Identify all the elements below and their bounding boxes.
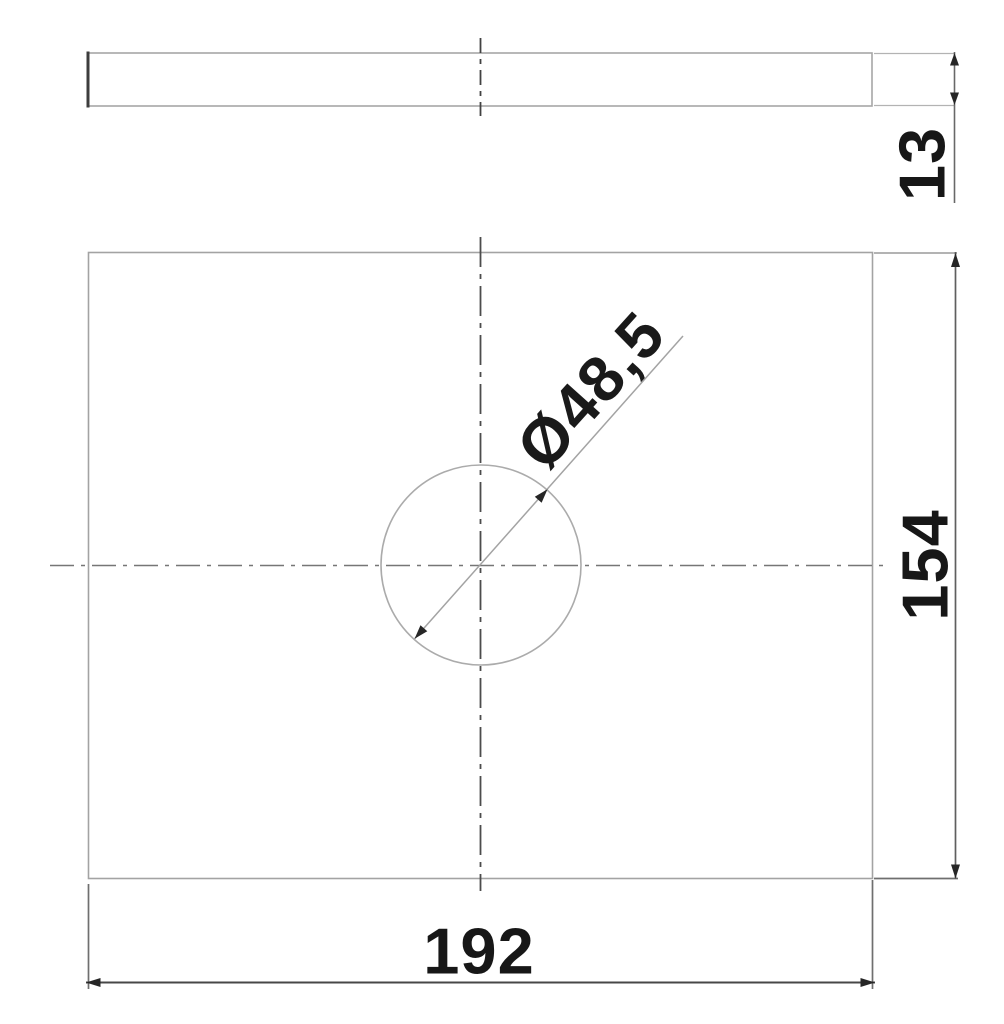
height-arrow-bottom	[951, 865, 960, 879]
width-dimension: 192	[86, 880, 875, 989]
thickness-arrow-bottom	[950, 93, 959, 106]
hole-diameter-label: Ø48,5	[503, 297, 680, 482]
height-arrow-top	[951, 253, 960, 267]
technical-drawing: 13 Ø48,5 154	[0, 0, 1004, 1024]
height-dimension: 154	[874, 252, 962, 879]
top-view	[88, 38, 872, 116]
width-dimension-label: 192	[423, 915, 534, 988]
height-dimension-label: 154	[889, 509, 962, 620]
thickness-dimension: 13	[874, 52, 959, 203]
thickness-arrow-top	[950, 53, 959, 66]
drawing-sheet: 13 Ø48,5 154	[0, 0, 1004, 1024]
front-view	[50, 237, 890, 891]
thickness-dimension-label: 13	[886, 127, 959, 201]
